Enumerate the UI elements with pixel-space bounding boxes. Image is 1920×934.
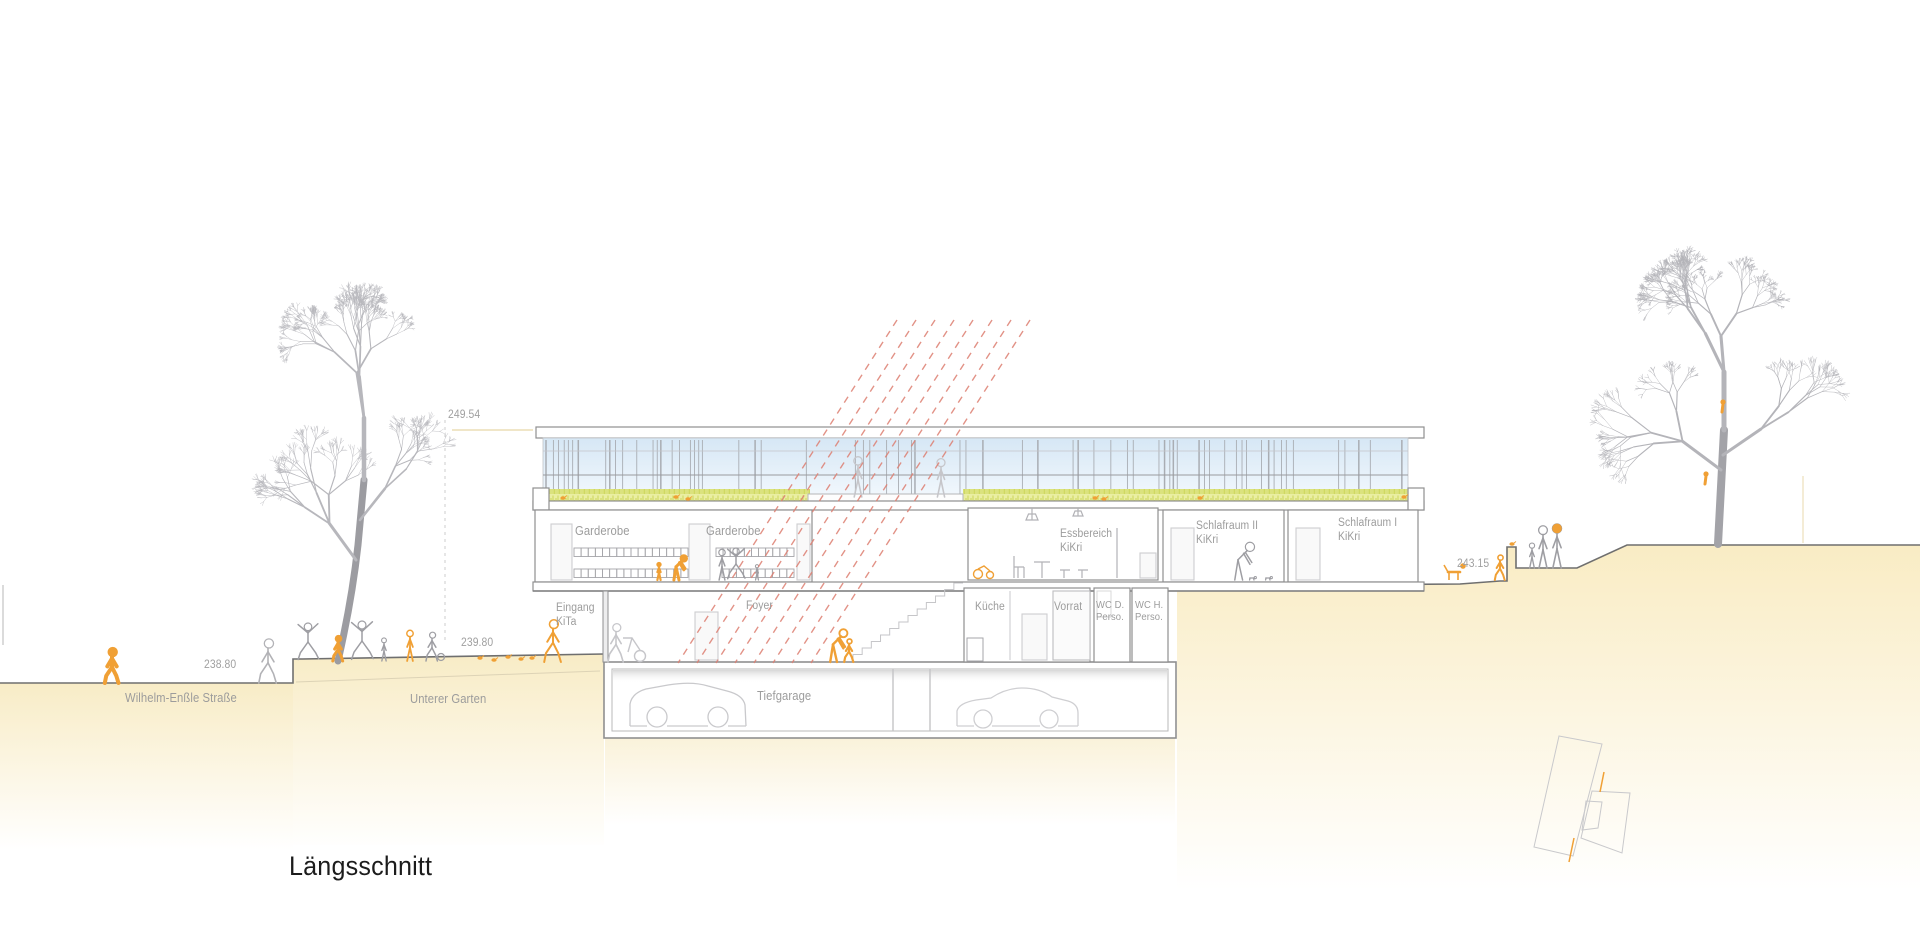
level-markers [445,420,533,641]
tree-left [252,282,456,661]
level-label-street: 238.80 [204,659,236,673]
room-label-garderobe-left: Garderobe [575,524,630,539]
level-label-rear-garden: 243.15 [1457,558,1489,572]
room-label-kueche: Küche [975,601,1005,615]
level-label-upper-garden: 239.80 [461,637,493,651]
room-label-garderobe-right: Garderobe [706,524,761,539]
room-label-tiefgarage: Tiefgarage [757,689,811,704]
level-label-roof: 249.54 [448,409,480,423]
room-label-foyer: Foyer [746,600,773,614]
drawing-title: Längsschnitt [289,851,432,882]
room-label-wc-d: WC D. Perso. [1096,599,1124,624]
section-drawing-canvas: Garderobe Garderobe Essbereich KiKri Sch… [0,0,1920,934]
room-label-schlafraum-2: Schlafraum II KiKri [1196,520,1258,547]
street-name-label: Wilhelm-Enßle Straße [125,691,237,706]
room-label-essbereich: Essbereich KiKri [1060,528,1112,555]
room-label-schlafraum-1: Schlafraum I KiKri [1338,517,1397,544]
underground-garage [604,662,1176,738]
garden-name-label: Unterer Garten [410,692,486,707]
section-drawing [0,0,1920,934]
tree-right [1590,246,1850,544]
room-label-wc-h: WC H. Perso. [1135,599,1163,624]
room-label-eingang: Eingang KiTa [556,602,595,629]
room-label-vorrat: Vorrat [1054,601,1082,615]
